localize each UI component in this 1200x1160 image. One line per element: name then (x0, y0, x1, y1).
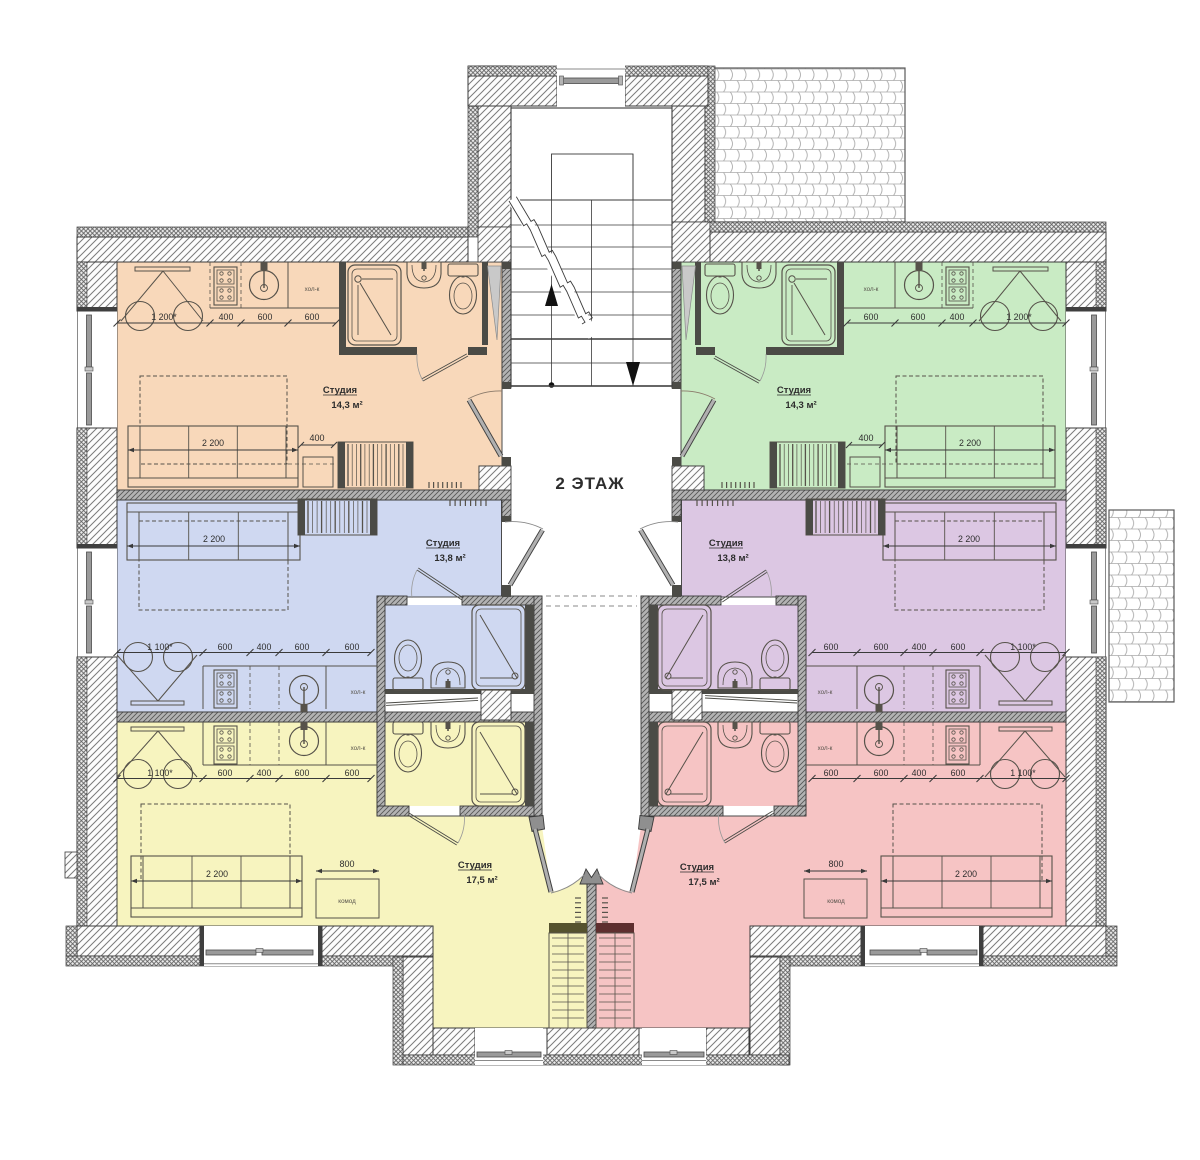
svg-text:Студия: Студия (680, 862, 714, 873)
svg-text:2 200: 2 200 (959, 438, 981, 448)
svg-text:1 100*: 1 100* (1010, 642, 1036, 652)
svg-text:600: 600 (951, 768, 966, 778)
svg-text:400: 400 (257, 642, 272, 652)
svg-text:Студия: Студия (426, 538, 460, 549)
svg-text:хол-к: хол-к (818, 745, 833, 752)
svg-text:600: 600 (824, 642, 839, 652)
svg-text:400: 400 (219, 312, 234, 322)
svg-text:2 200: 2 200 (203, 534, 225, 544)
svg-text:хол-к: хол-к (864, 286, 879, 293)
svg-text:1 100*: 1 100* (1010, 768, 1036, 778)
svg-text:600: 600 (911, 312, 926, 322)
svg-text:17,5 м²: 17,5 м² (688, 877, 719, 888)
svg-text:400: 400 (257, 768, 272, 778)
svg-text:800: 800 (339, 859, 354, 869)
svg-text:600: 600 (258, 312, 273, 322)
svg-text:600: 600 (345, 642, 360, 652)
svg-text:Студия: Студия (323, 385, 357, 396)
svg-text:17,5 м²: 17,5 м² (466, 875, 497, 886)
svg-text:2 ЭТАЖ: 2 ЭТАЖ (555, 474, 624, 493)
svg-text:Студия: Студия (777, 385, 811, 396)
svg-text:600: 600 (874, 642, 889, 652)
svg-text:600: 600 (824, 768, 839, 778)
svg-text:14,3 м²: 14,3 м² (331, 400, 362, 411)
svg-text:13,8 м²: 13,8 м² (434, 553, 465, 564)
svg-text:400: 400 (309, 433, 324, 443)
svg-text:13,8 м²: 13,8 м² (717, 553, 748, 564)
svg-text:1 100*: 1 100* (147, 768, 173, 778)
svg-text:600: 600 (218, 768, 233, 778)
svg-text:Студия: Студия (458, 860, 492, 871)
svg-text:600: 600 (874, 768, 889, 778)
svg-text:2 200: 2 200 (202, 438, 224, 448)
svg-text:600: 600 (345, 768, 360, 778)
svg-text:600: 600 (305, 312, 320, 322)
svg-text:600: 600 (295, 768, 310, 778)
svg-text:600: 600 (295, 642, 310, 652)
svg-text:комод: комод (827, 898, 845, 905)
svg-text:400: 400 (858, 433, 873, 443)
svg-text:600: 600 (951, 642, 966, 652)
svg-text:2 200: 2 200 (958, 534, 980, 544)
svg-text:14,3 м²: 14,3 м² (785, 400, 816, 411)
svg-text:хол-к: хол-к (351, 689, 366, 696)
svg-text:Студия: Студия (709, 538, 743, 549)
svg-text:хол-к: хол-к (305, 286, 320, 293)
svg-text:2 200: 2 200 (955, 869, 977, 879)
svg-text:комод: комод (338, 898, 356, 905)
svg-text:400: 400 (912, 768, 927, 778)
svg-text:1 200*: 1 200* (1006, 312, 1032, 322)
svg-text:1 200*: 1 200* (151, 312, 177, 322)
svg-text:600: 600 (864, 312, 879, 322)
svg-text:хол-к: хол-к (818, 689, 833, 696)
svg-text:1 100*: 1 100* (147, 642, 173, 652)
svg-text:хол-к: хол-к (351, 745, 366, 752)
svg-text:2 200: 2 200 (206, 869, 228, 879)
svg-text:800: 800 (828, 859, 843, 869)
svg-text:400: 400 (950, 312, 965, 322)
svg-text:400: 400 (912, 642, 927, 652)
svg-text:600: 600 (218, 642, 233, 652)
